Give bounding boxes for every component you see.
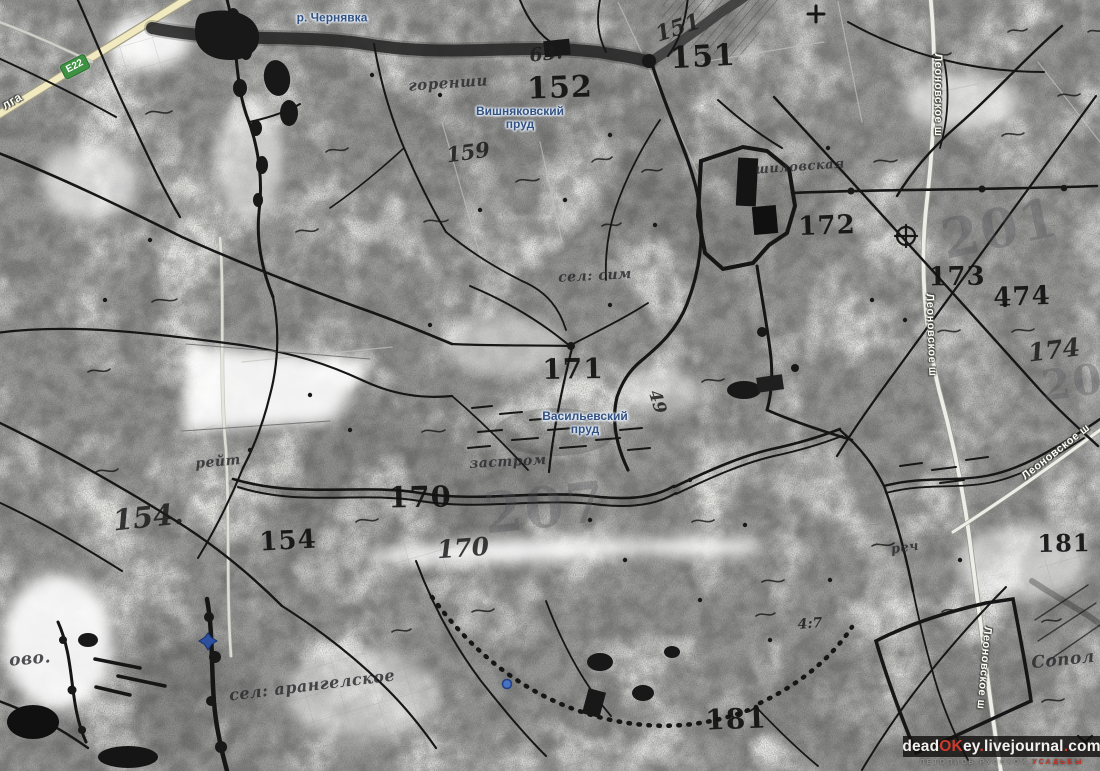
watermark-site: deadOKey.livejournal.com xyxy=(902,738,1100,756)
plot-number-171: 171 xyxy=(542,352,604,386)
plot-number-170: 170 xyxy=(388,479,452,514)
river-chernyavka-label: р. Чернявка xyxy=(297,12,368,25)
road-name-leonovskoe-1: Леоновское ш xyxy=(932,54,944,137)
wm-seg-com: com xyxy=(1068,738,1100,755)
plot-number-151: 151 xyxy=(669,38,736,76)
handwritten-number-63: 63. xyxy=(528,41,563,66)
handwritten-number-170: 170 xyxy=(436,532,490,565)
vishnyakovsky-pond-label: Вишняковский пруд xyxy=(476,105,564,131)
faded-number-207: 207 xyxy=(480,469,609,547)
handwritten-number-4-7: 4:7 xyxy=(797,615,823,633)
plot-number-181-a: 181 xyxy=(705,701,768,736)
wm-subtitle-accent: УСАДЬБЫ xyxy=(1032,759,1083,766)
plot-number-181-b: 181 xyxy=(1037,528,1091,558)
vasilyevsky-pond-label: Васильевский пруд xyxy=(542,410,628,436)
plot-number-172: 172 xyxy=(798,210,856,242)
vishnyakovsky-line2: пруд xyxy=(476,118,564,131)
plot-number-152: 152 xyxy=(527,69,594,106)
watermark-bar: deadOKey.livejournal.com xyxy=(903,736,1100,757)
handwriting-ovo: ово. xyxy=(8,647,51,671)
blue-dot-marker[interactable] xyxy=(503,680,512,689)
watermark-subtitle: ЛЕТОПИСЬ РУССКОЙ УСАДЬБЫ xyxy=(903,759,1100,766)
plot-number-474: 474 xyxy=(993,281,1051,313)
vasilyevsky-line2: пруд xyxy=(542,423,628,436)
wm-seg-livejournal: livejournal xyxy=(984,738,1064,755)
plot-number-154: 154 xyxy=(259,525,318,558)
wm-seg-ok: OK xyxy=(939,738,963,755)
wm-subtitle-main: ЛЕТОПИСЬ РУССКОЙ xyxy=(920,759,1029,766)
wm-seg-ey: ey xyxy=(963,738,980,755)
map-viewport[interactable]: 151 152 171 172 173 474 170 154 181 181 … xyxy=(0,0,1100,771)
wm-seg-dead: dead xyxy=(902,738,939,755)
